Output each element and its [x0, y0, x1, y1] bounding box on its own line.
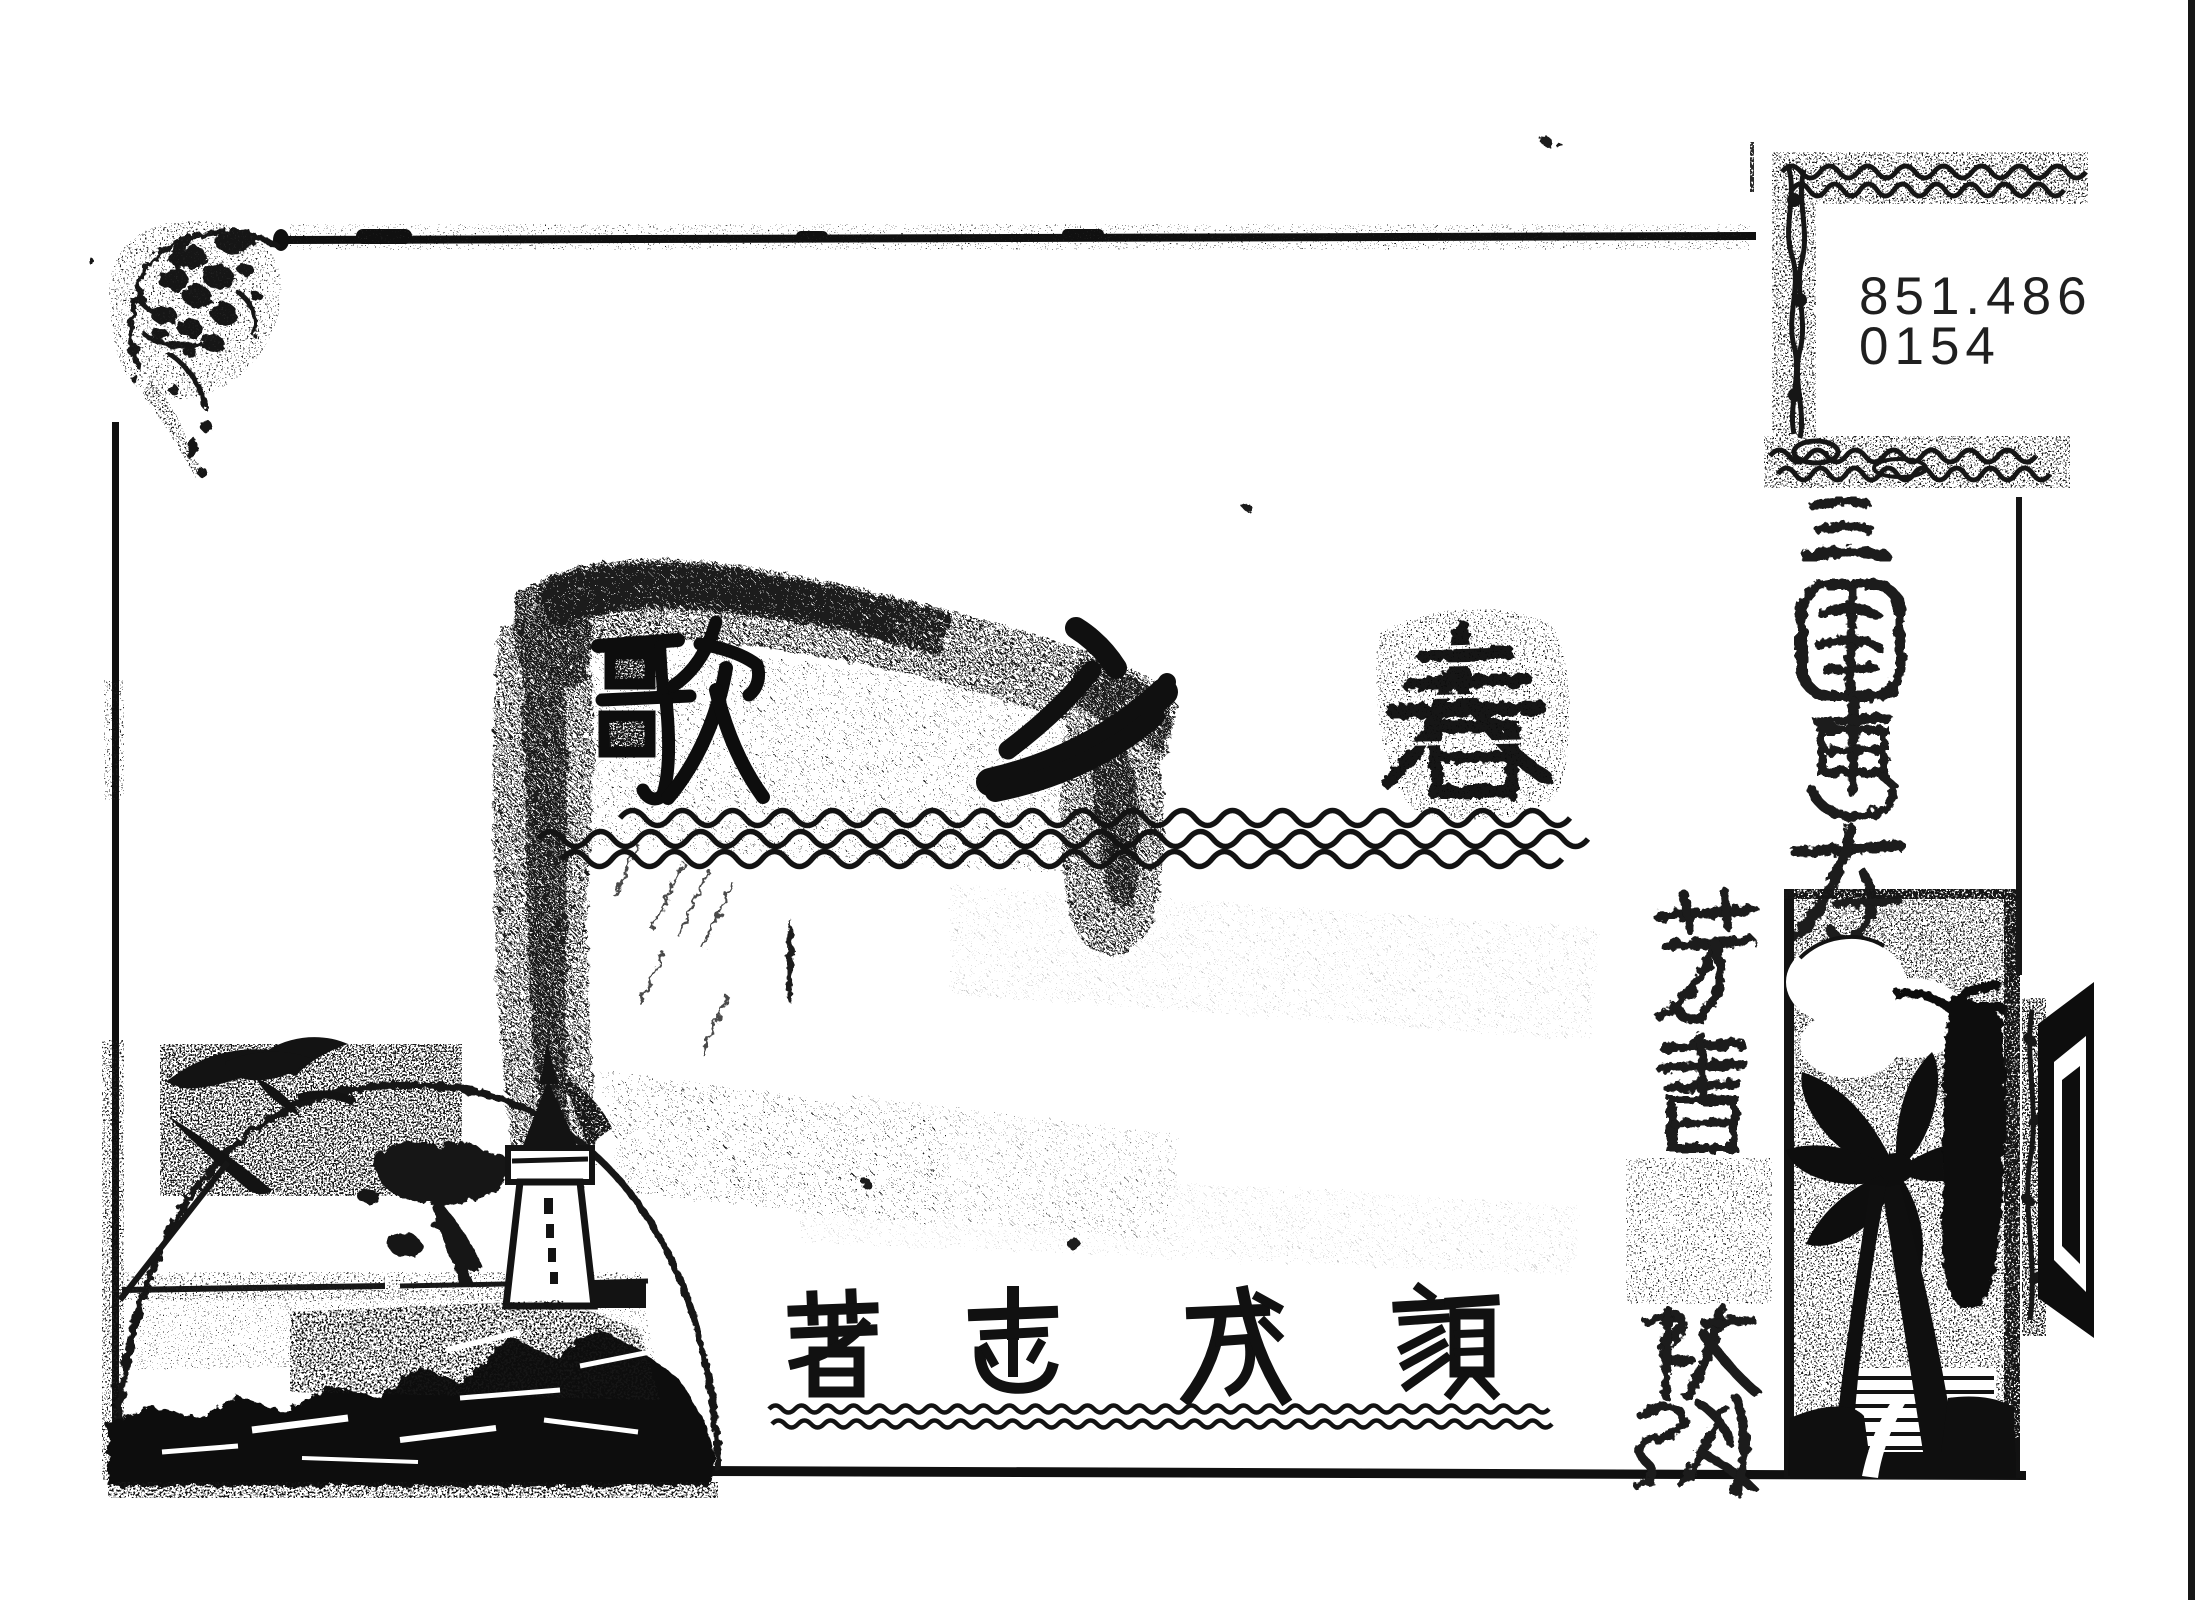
svg-text:0154: 0154	[1859, 317, 2001, 376]
